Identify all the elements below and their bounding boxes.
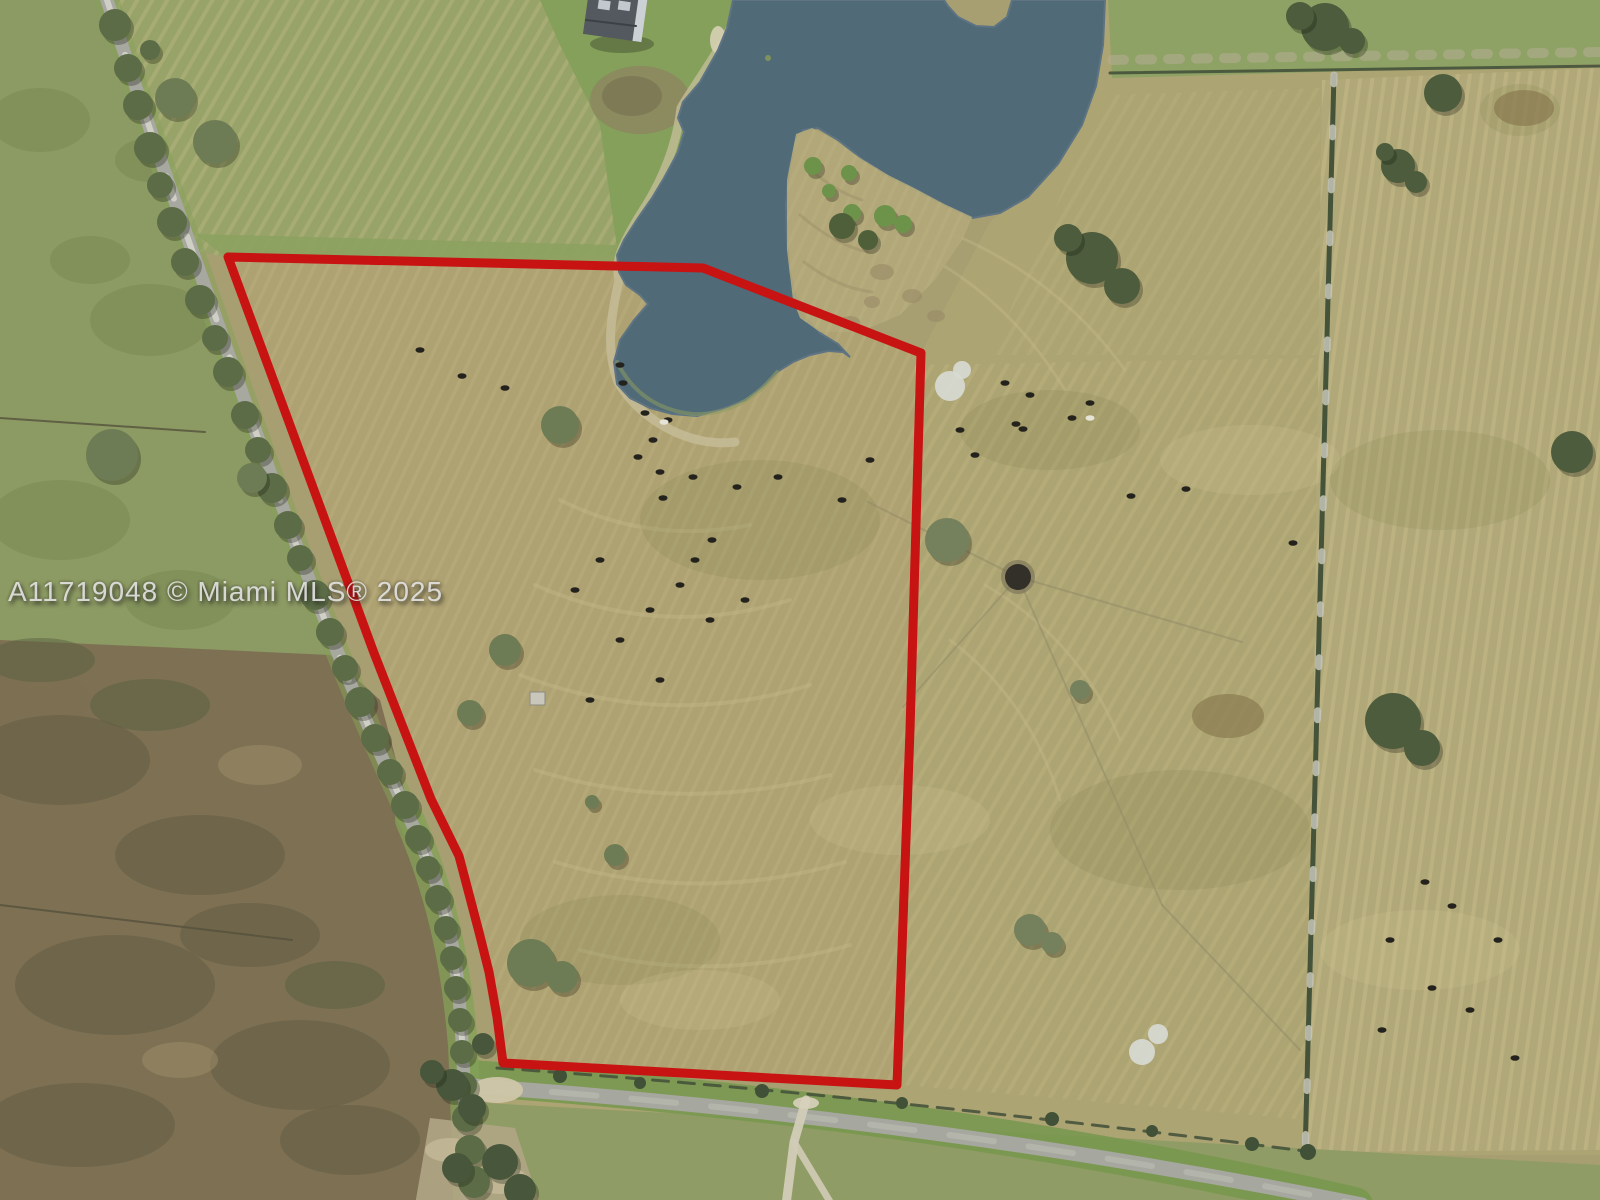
house-vent-1 (598, 0, 611, 10)
photo-layers (0, 0, 1600, 1200)
small-structure (530, 692, 545, 705)
waterhole (1005, 564, 1031, 590)
lake-island-dot (765, 55, 771, 61)
aerial-photo: A11719048 © Miami MLS® 2025 (0, 0, 1600, 1200)
aerial-scene (0, 0, 1600, 1200)
east-field-mowlines (1308, 68, 1600, 1152)
lawn-scrub-dark (602, 76, 662, 116)
driveway-entrance-sand (793, 1097, 819, 1109)
house-vent-2 (618, 1, 631, 12)
